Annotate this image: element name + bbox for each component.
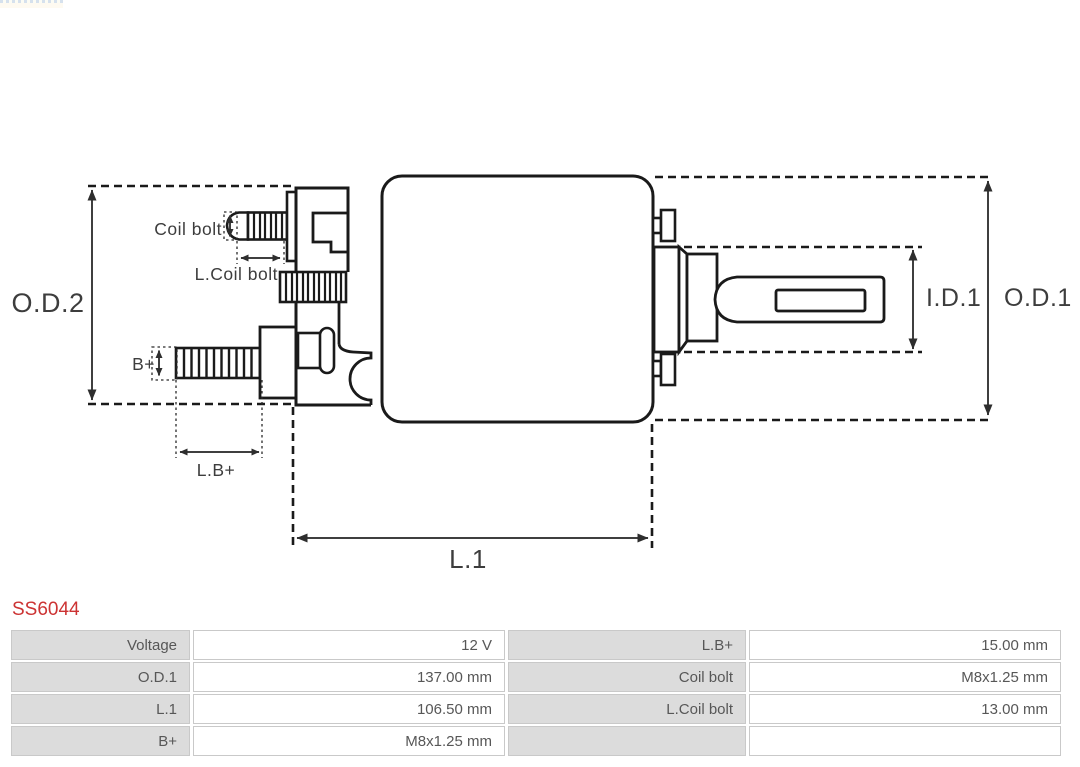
- spec-value-cell: 12 V: [193, 630, 505, 660]
- part-number[interactable]: SS6044: [12, 599, 80, 621]
- coil-bushing: [280, 272, 346, 302]
- spec-value-cell: M8x1.25 mm: [193, 726, 505, 756]
- spec-label-cell: B+: [11, 726, 190, 756]
- spec-label-cell: Voltage: [11, 630, 190, 660]
- spec-label-cell: [508, 726, 746, 756]
- dimension-label-b-plus: B+: [132, 354, 155, 374]
- spec-label-cell: L.1: [11, 694, 190, 724]
- spec-row: B+ M8x1.25 mm: [11, 726, 1061, 756]
- dimension-label-l-coil-bolt: L.Coil bolt: [195, 264, 278, 284]
- spec-table: Voltage 12 V L.B+ 15.00 mm O.D.1 137.00 …: [8, 628, 1064, 758]
- spec-value-cell: 15.00 mm: [749, 630, 1061, 660]
- dimension-label-od2: O.D.2: [11, 288, 84, 318]
- dimension-label-od1: O.D.1: [1004, 284, 1072, 312]
- dimension-label-id1: I.D.1: [926, 284, 981, 312]
- spec-value-cell: 137.00 mm: [193, 662, 505, 692]
- solenoid-body: [382, 176, 653, 422]
- spec-label-cell: L.Coil bolt: [508, 694, 746, 724]
- solenoid-dimension-diagram: O.D.2 O.D.1 I.D.1 L.1 Coil bolt L.Coil b…: [0, 0, 1080, 592]
- spec-value-cell: 13.00 mm: [749, 694, 1061, 724]
- spec-value-cell: 106.50 mm: [193, 694, 505, 724]
- spec-label-cell: O.D.1: [11, 662, 190, 692]
- washer-assembly: [298, 328, 334, 373]
- product-drawing-page: O.D.2 O.D.1 I.D.1 L.1 Coil bolt L.Coil b…: [0, 0, 1080, 767]
- b-plus-terminal: [176, 327, 296, 398]
- dimension-label-l1: L.1: [449, 544, 487, 574]
- spec-row: L.1 106.50 mm L.Coil bolt 13.00 mm: [11, 694, 1061, 724]
- spec-row: O.D.1 137.00 mm Coil bolt M8x1.25 mm: [11, 662, 1061, 692]
- spec-value-cell: [749, 726, 1061, 756]
- dimension-label-l-b-plus: L.B+: [197, 460, 236, 480]
- spec-label-cell: L.B+: [508, 630, 746, 660]
- spec-row: Voltage 12 V L.B+ 15.00 mm: [11, 630, 1061, 660]
- spec-label-cell: Coil bolt: [508, 662, 746, 692]
- dimension-label-coil-bolt: Coil bolt: [154, 219, 222, 239]
- plunger-shaft: [654, 247, 884, 352]
- spec-value-cell: M8x1.25 mm: [749, 662, 1061, 692]
